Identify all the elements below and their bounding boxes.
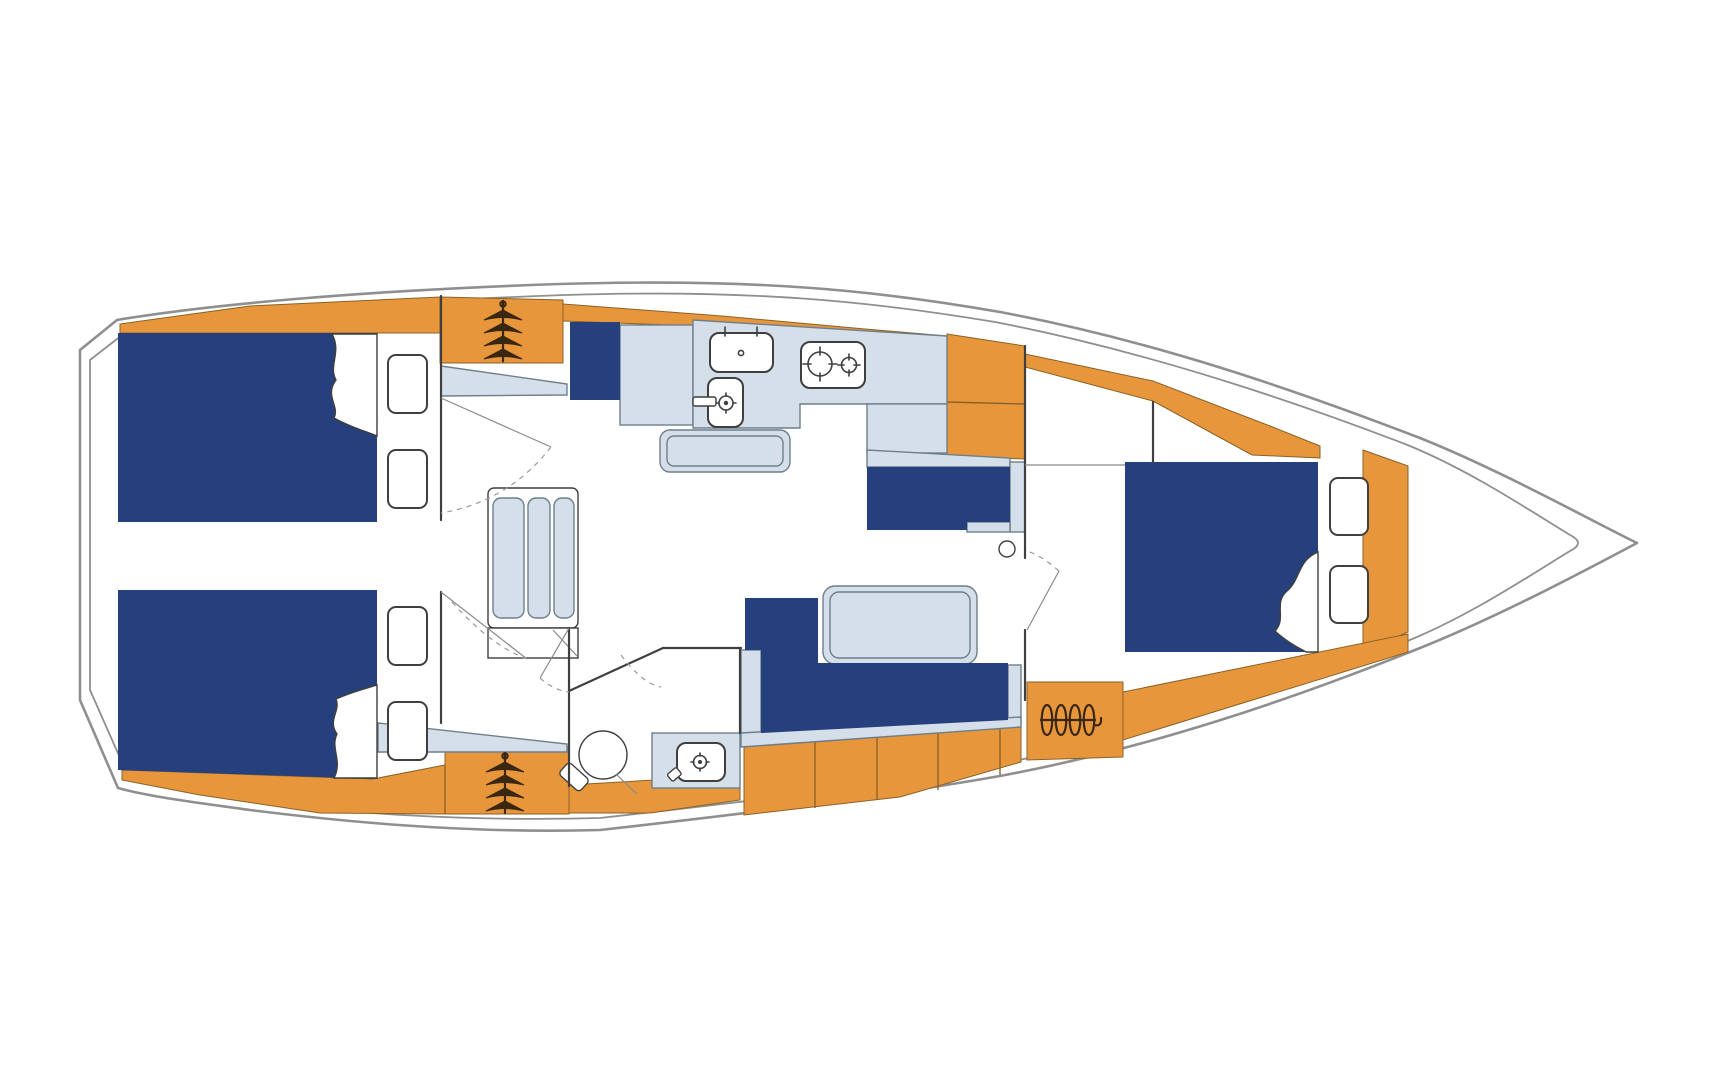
washbasin-handle: [693, 397, 716, 406]
galley-fridge-column: [620, 325, 693, 425]
galley-tray-table: [660, 430, 790, 472]
galley-seat-block: [570, 322, 620, 400]
aft-starboard-cushion-2: [388, 702, 427, 760]
nav-seat-step: [967, 522, 1010, 532]
settee-left-strip: [741, 650, 761, 733]
nav-seat: [867, 467, 1010, 530]
forward-cushion-2: [1330, 566, 1368, 623]
step-slat-2: [528, 498, 550, 618]
bow-locker: [1363, 450, 1408, 652]
aft-port-cushion-2: [388, 450, 427, 508]
pillow-fold-aft-starboard: [333, 685, 377, 778]
galley-stove: [801, 342, 865, 388]
galley-lockers: [947, 334, 1025, 459]
hanger-icon-forward: [1041, 705, 1101, 735]
nav-seat-side-strip: [1010, 462, 1025, 532]
forward-cushion-1: [1330, 478, 1368, 535]
step-slat-1: [493, 498, 524, 618]
galley-sink: [710, 327, 773, 372]
door-knob: [999, 541, 1015, 557]
aft-port-cushion-1: [388, 355, 427, 413]
settee-right-strip: [1008, 665, 1021, 724]
step-slat-3: [554, 498, 574, 618]
galley-counter-right: [867, 404, 947, 453]
companionway-steps: [488, 488, 578, 658]
pillow-fold-aft-port: [331, 334, 377, 436]
floorplan-svg: [0, 0, 1711, 1080]
salon-table: [823, 586, 977, 664]
aft-starboard-cushion-1: [388, 607, 427, 665]
boat-floorplan-canvas: [0, 0, 1711, 1080]
